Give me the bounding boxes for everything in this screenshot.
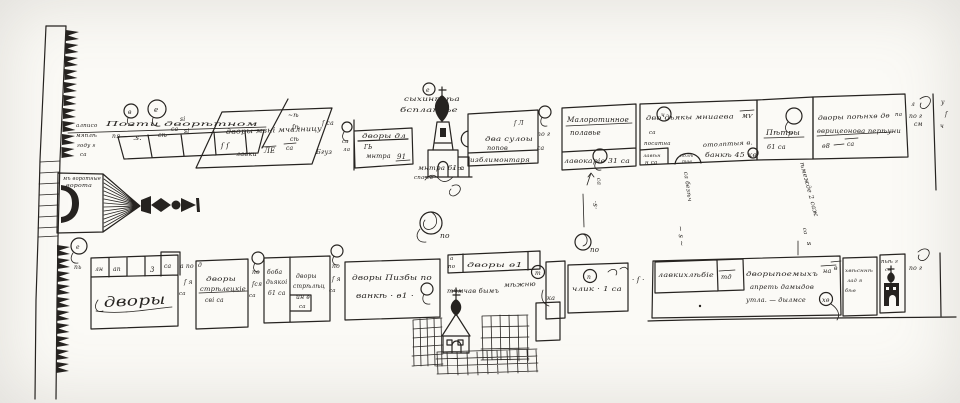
svg-text:3: 3: [150, 266, 155, 274]
gate-caption-line2: ворота: [66, 183, 92, 189]
svg-text:пь: пь: [74, 264, 82, 271]
svg-text:са: са: [595, 178, 603, 186]
svg-text:посатна: посатна: [644, 141, 671, 147]
svg-text:по: по: [332, 263, 340, 270]
svg-text:са: са: [80, 152, 87, 158]
plot-suloy: ſ Л два сулоы попов изблимонтаря л са: [452, 110, 538, 172]
svg-text:са: са: [164, 263, 172, 270]
svg-text:ка: ка: [547, 294, 555, 302]
svg-text:е: е: [76, 244, 80, 251]
svg-text:~ѣ: ~ѣ: [288, 112, 299, 119]
plot-b6: п члик · 1 са · ſ ·: [568, 263, 645, 313]
plot-b3-double: боба дьякоі 61 са дворы стрѣлѣц ин ѳ са …: [264, 245, 343, 323]
svg-text:по: по: [448, 264, 456, 270]
svg-text:ſ Л: ſ Л: [513, 120, 525, 127]
plot-maloros: Малоротинное полавье лавокаріе 31 са: [562, 104, 636, 170]
plot-dyaki: ч дво дьякы мниаева мѵ са посатна лавѣн …: [640, 100, 758, 166]
boundary-label: мѣжню т ка: [504, 266, 555, 307]
svg-text:ванкѣ · ѳ1 ·: ванкѣ · ѳ1 ·: [356, 292, 414, 300]
right-edge-marks: л по г см у ſ ч: [909, 94, 949, 190]
svg-text:· ſ ·: · ſ ·: [632, 276, 645, 284]
svg-text:ſ я: ſ я: [183, 279, 193, 286]
svg-text:пьѣ г: пьѣ г: [881, 259, 898, 265]
svg-text:ѕі: ѕі: [184, 128, 189, 135]
svg-text:са: са: [329, 288, 336, 294]
plot-last: дворы поѣнхѳ дѳ па ѳврицеонова перѣуни ѳ…: [813, 94, 908, 159]
chapel-dome: [887, 272, 895, 283]
svg-text:дворы дл: дворы дл: [362, 132, 406, 140]
gate-caption-line1: мъ воротные: [63, 176, 101, 182]
svg-text:са: са: [249, 293, 256, 299]
svg-text:дворы поѣнхѳ дѳ: дворы поѣнхѳ дѳ: [818, 111, 890, 122]
plot-b4: дворы Пизбы по ванкѣ · ѳ1 ·: [345, 259, 440, 320]
manuscript-plan-canvas: мъ воротные ворота в е Позти дворѣтном п…: [0, 0, 960, 403]
svg-text:п: п: [587, 274, 591, 281]
bottom-plot-row: е пь лн ап 3 са дворы а по ſ я са д двор…: [71, 238, 956, 341]
top-plot-row: в е Позти дворѣтном пя .ѕ. сѣ са алписо …: [68, 83, 949, 190]
svg-text:ſ я: ſ я: [331, 276, 341, 283]
svg-text:дво дьякы мниаева: дво дьякы мниаева: [646, 112, 734, 122]
svg-text:ſ са: ſ са: [321, 120, 334, 127]
svg-text:в: в: [834, 265, 838, 272]
svg-text:ап: ап: [113, 266, 121, 273]
svg-text:91: 91: [397, 153, 406, 161]
svg-text:на: на: [823, 267, 832, 275]
svg-text:дворыпоемыхъ: дворыпоемыхъ: [746, 270, 819, 278]
svg-text:ſ: ſ: [944, 111, 949, 118]
svg-text:по: по: [252, 269, 260, 276]
svg-text:н са: н са: [645, 160, 658, 166]
svg-text:.ѕ.: .ѕ.: [133, 134, 142, 142]
svg-text:лавки: лавки: [236, 150, 257, 158]
church-lower: [442, 288, 470, 353]
svg-text:е: е: [426, 87, 430, 94]
plot-monastery: дворы дл ГЬ мнтра 91: [354, 120, 413, 170]
svg-text:тд: тд: [721, 273, 732, 281]
svg-text:са: са: [847, 141, 855, 148]
gate-arch: [61, 185, 79, 223]
svg-text:боба: боба: [267, 269, 283, 276]
svg-text:у: у: [940, 99, 945, 106]
church-lower-window-left: [447, 340, 452, 345]
svg-text:дьякоі: дьякоі: [266, 279, 287, 286]
gate-axis-finial: [141, 196, 200, 214]
svg-text:Малоротинное: Малоротинное: [566, 116, 629, 124]
svg-text:по: по: [590, 246, 599, 254]
svg-text:полѣ: полѣ: [680, 154, 693, 159]
svg-text:члик · 1 са: члик · 1 са: [572, 285, 622, 293]
svg-text:Пѣтры: Пѣтры: [765, 128, 800, 137]
svg-text:хѳ: хѳ: [822, 296, 830, 304]
svg-text:т: т: [535, 270, 541, 277]
svg-text:61 са: 61 са: [767, 143, 786, 151]
svg-text:са: са: [649, 130, 656, 136]
svg-text:дворы Пизбы по: дворы Пизбы по: [352, 274, 432, 282]
svg-text:ѕ: ѕ: [805, 241, 813, 246]
svg-text:по г: по г: [909, 265, 922, 272]
svg-text:лавѣн: лавѣн: [643, 153, 661, 159]
fence-grid-right: [481, 315, 529, 361]
svg-text:е: е: [154, 106, 158, 114]
svg-text:стрѣлѣц: стрѣлѣц: [293, 283, 325, 290]
church-lower-yard: [412, 288, 538, 375]
svg-text:мѣжню: мѣжню: [504, 280, 536, 289]
svg-text:ſся: ſся: [251, 281, 262, 288]
svg-text:л са: л са: [452, 166, 464, 172]
svg-text:утла. — дылмсе: утла. — дылмсе: [745, 297, 806, 304]
plot-b1: е пь лн ап 3 са дворы а по ſ я са: [71, 238, 194, 329]
svg-text:году ѕ: году ѕ: [77, 143, 96, 149]
svg-text:дворы ѳ1: дворы ѳ1: [467, 261, 523, 269]
svg-text:см: см: [914, 121, 923, 128]
svg-text:лавокаріе 31 са: лавокаріе 31 са: [564, 158, 630, 165]
svg-text:лн: лн: [95, 266, 103, 273]
dvory-script: дворы: [103, 292, 166, 311]
svg-text:мѵ: мѵ: [742, 112, 753, 120]
lane-measure-1: по г са: [537, 106, 551, 152]
svg-text:по г: по г: [537, 131, 550, 138]
wall-gate: мъ воротные ворота: [57, 173, 200, 233]
svg-text:са безѣч: са безѣч: [682, 171, 693, 202]
church-lower-roof: [442, 314, 470, 336]
church-upper-base: [425, 150, 472, 177]
plot-b9-chapel: пьѣ г сѳ: [880, 254, 905, 313]
svg-text:са: са: [299, 304, 306, 310]
svg-text:полавье: полавье: [570, 129, 601, 137]
svg-text:бсплатѣе: бсплатѣе: [400, 106, 458, 114]
svg-text:по: по: [440, 231, 450, 240]
svg-text:по г: по г: [909, 113, 922, 120]
svg-text:а: а: [450, 256, 453, 262]
svg-text:са: са: [537, 145, 545, 152]
svg-text:д: д: [198, 262, 202, 269]
svg-text:дворы: дворы: [206, 275, 236, 283]
plot-parallelogram: дворы мзні мчалницу ſ ſ лавки ЛЕ са: [196, 108, 332, 168]
svg-text:са: са: [171, 126, 179, 133]
svg-text:лад я: лад я: [847, 278, 862, 284]
svg-text:отолптыя в.: отолптыя в.: [703, 139, 753, 149]
svg-text:са: са: [286, 145, 294, 152]
svg-text:ин ѳ: ин ѳ: [296, 294, 310, 301]
street-measures: по са ·ѕ· по са безѣч ~ ѕ ~ ѣмежде 2 саж…: [417, 161, 820, 255]
svg-text:ѣмежде 2 саж: ѣмежде 2 саж: [798, 161, 820, 217]
svg-text:хвѣсннѣ: хвѣсннѣ: [845, 268, 873, 274]
plot-b8: хвѣсннѣ лад я бѣѳ: [843, 257, 877, 316]
svg-text:са: са: [342, 139, 349, 145]
svg-text:банкѣ 45 кѳ: банкѣ 45 кѳ: [705, 152, 758, 159]
svg-text:попов: попов: [487, 144, 508, 152]
svg-text:ч: ч: [940, 123, 944, 130]
svg-text:сыхинпоѣа: сыхинпоѣа: [404, 96, 460, 103]
svg-text:са: са: [179, 291, 186, 297]
svg-text:тое: тое: [682, 160, 692, 165]
svg-text:61 са: 61 са: [268, 290, 286, 297]
svg-text:~ ѕ ~: ~ ѕ ~: [676, 225, 686, 246]
plot-b5-strip: а по дворы ѳ1 тчмчав бымъ: [447, 251, 540, 295]
svg-text:дворы: дворы: [296, 273, 317, 280]
wall-battlement-teeth-bottom: [56, 245, 70, 373]
svg-text:·ѕ·: ·ѕ·: [591, 200, 600, 209]
svg-text:ГЬ: ГЬ: [363, 144, 372, 151]
svg-text:са: са: [801, 227, 808, 235]
svg-text:апреть дамыдов: апреть дамыдов: [750, 284, 814, 291]
svg-text:ѕі: ѕі: [180, 116, 185, 123]
svg-text:изблимонтаря: изблимонтаря: [470, 157, 530, 164]
svg-text:мяплѣ: мяплѣ: [76, 133, 97, 139]
svg-text:ла: ла: [343, 147, 350, 153]
svg-text:па: па: [895, 112, 902, 118]
church-upper-window: [440, 128, 446, 137]
svg-text:два сулоы: два сулоы: [485, 135, 533, 143]
svg-text:ЛЕ: ЛЕ: [263, 147, 275, 155]
gate-hatched-fan: [103, 174, 140, 232]
svg-text:алписо: алписо: [76, 123, 98, 129]
svg-text:ſ ſ: ſ ſ: [220, 142, 230, 150]
svg-text:лавкихлѣбіе: лавкихлѣбіе: [658, 272, 714, 279]
svg-text:сві са: сві са: [205, 297, 224, 304]
svg-text:бѣѳ: бѣѳ: [845, 287, 856, 294]
plot-petry: Пѣтры 61 са: [757, 97, 813, 160]
svg-text:л: л: [911, 101, 915, 108]
chapel-door: [889, 295, 896, 306]
plot-b7-row: лавкихлѣбіе тд дворыпоемыхъ на апреть да…: [652, 256, 841, 320]
svg-text:ѳ8: ѳ8: [822, 142, 830, 150]
lane-slash: [262, 99, 288, 148]
svg-text:сѳ: сѳ: [885, 267, 891, 273]
svg-text:сѣ: сѣ: [290, 136, 300, 143]
manuscript-page: мъ воротные ворота в е Позти дворѣтном п…: [0, 0, 960, 403]
plot-b2: д дворы стрѣлецкіе сві са по ſся са: [196, 252, 264, 329]
svg-text:Бгуз: Бгуз: [315, 148, 332, 156]
svg-text:в: в: [128, 109, 132, 116]
svg-text:а по: а по: [180, 263, 194, 270]
svg-text:мнтра: мнтра: [366, 152, 391, 160]
church-upper-cross: [439, 87, 446, 96]
